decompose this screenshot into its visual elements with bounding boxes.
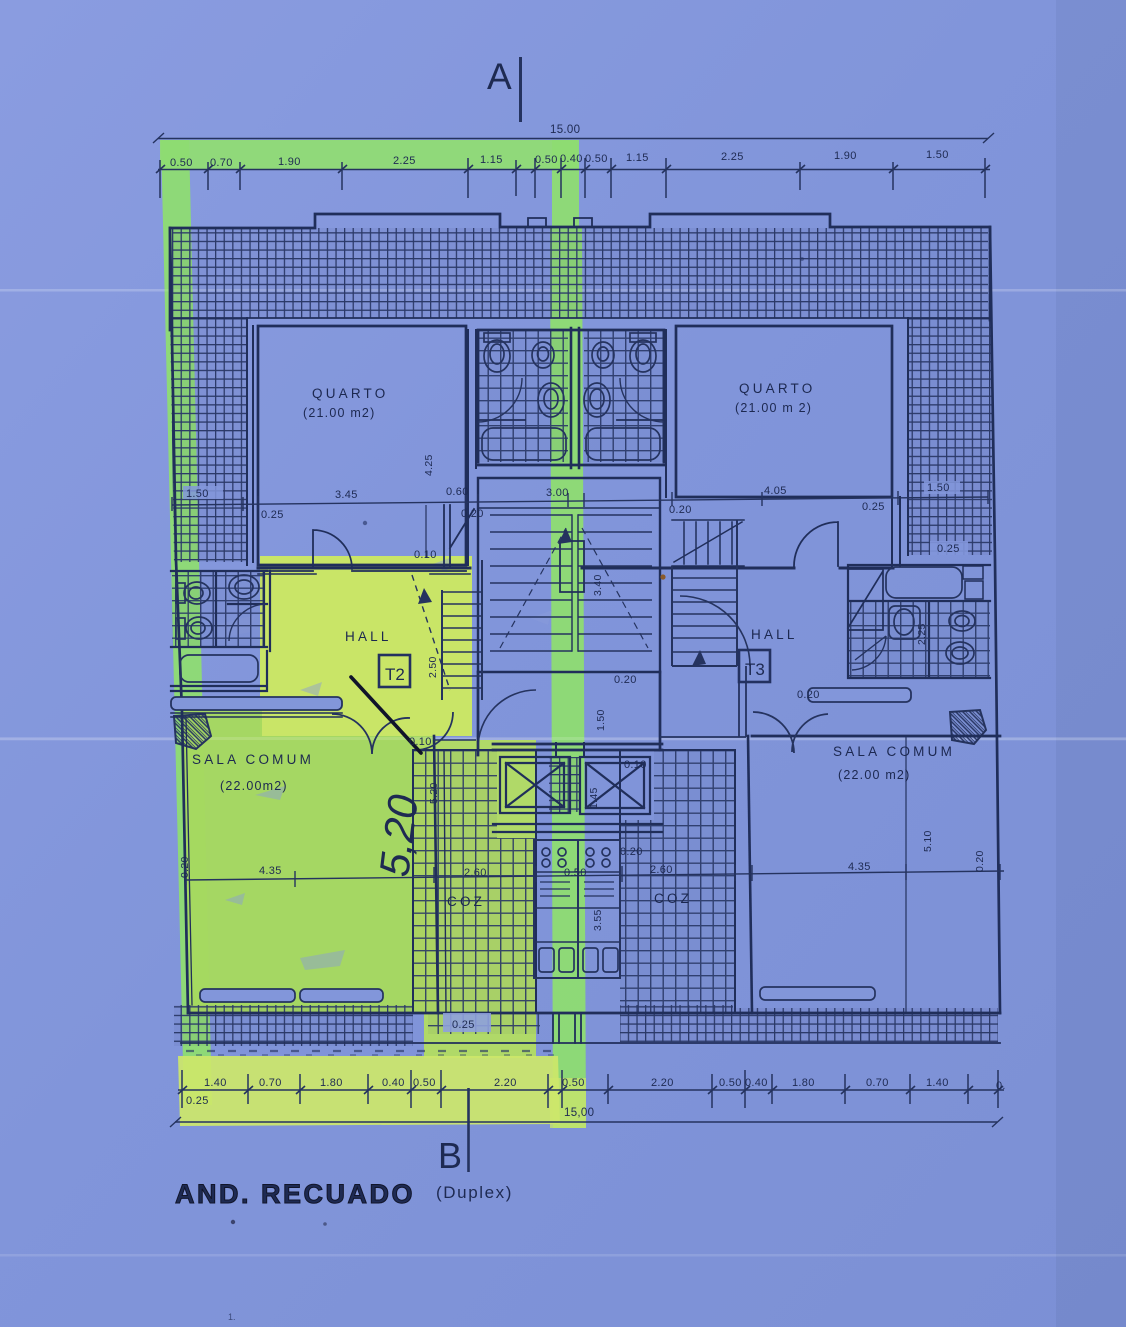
svg-text:5,20: 5,20: [370, 792, 427, 879]
svg-text:1.90: 1.90: [278, 156, 301, 168]
svg-text:5.20: 5.20: [428, 782, 440, 804]
svg-text:(21.00 m2): (21.00 m2): [303, 406, 375, 420]
svg-text:1.50: 1.50: [926, 149, 949, 161]
svg-text:1.40: 1.40: [204, 1077, 227, 1089]
svg-text:0.50: 0.50: [564, 867, 587, 879]
svg-text:3.45: 3.45: [335, 489, 358, 501]
svg-text:0.25: 0.25: [452, 1019, 475, 1031]
svg-text:1.50: 1.50: [927, 482, 950, 494]
svg-text:0.20: 0.20: [797, 689, 820, 701]
svg-text:1.50: 1.50: [595, 709, 607, 731]
svg-text:0.70: 0.70: [866, 1077, 889, 1089]
svg-text:1.15: 1.15: [480, 154, 503, 166]
svg-text:0.50: 0.50: [562, 1077, 585, 1089]
svg-text:A: A: [487, 56, 512, 97]
svg-text:0.25: 0.25: [937, 543, 960, 555]
svg-text:0.20: 0.20: [179, 856, 191, 878]
svg-text:HALL: HALL: [751, 627, 798, 642]
svg-text:0.40: 0.40: [745, 1077, 768, 1089]
svg-text:0.25: 0.25: [862, 501, 885, 513]
svg-text:2.60: 2.60: [650, 864, 673, 876]
svg-text:1.45: 1.45: [588, 787, 600, 809]
svg-text:1.80: 1.80: [792, 1077, 815, 1089]
svg-text:(21.00 m 2): (21.00 m 2): [735, 401, 812, 415]
svg-text:2.25: 2.25: [721, 151, 744, 163]
svg-text:0.25: 0.25: [186, 1095, 209, 1107]
svg-text:4.35: 4.35: [848, 861, 871, 873]
svg-text:1.40: 1.40: [926, 1077, 949, 1089]
svg-text:COZ: COZ: [447, 894, 485, 909]
svg-text:1.50: 1.50: [186, 488, 209, 500]
svg-text:1.15: 1.15: [626, 152, 649, 164]
svg-text:2.20: 2.20: [651, 1077, 674, 1089]
svg-text:SALA COMUM: SALA COMUM: [192, 752, 314, 767]
svg-text:2.20: 2.20: [494, 1077, 517, 1089]
svg-text:0.20: 0.20: [620, 846, 643, 858]
svg-text:(22.00m2): (22.00m2): [220, 779, 288, 793]
svg-text:0.10: 0.10: [624, 759, 647, 771]
svg-text:2.50: 2.50: [427, 656, 439, 678]
svg-text:0.20: 0.20: [974, 850, 986, 872]
svg-text:T3: T3: [745, 660, 765, 679]
svg-text:3.40: 3.40: [592, 574, 604, 596]
svg-text:3.55: 3.55: [592, 909, 604, 931]
svg-text:0.60: 0.60: [446, 486, 469, 498]
svg-text:2.60: 2.60: [464, 867, 487, 879]
svg-text:SALA COMUM: SALA COMUM: [833, 744, 955, 759]
svg-text:2.25: 2.25: [393, 155, 416, 167]
svg-text:4.25: 4.25: [423, 454, 435, 476]
svg-text:0.50: 0.50: [719, 1077, 742, 1089]
svg-text:(Duplex): (Duplex): [436, 1183, 513, 1202]
svg-text:0.50: 0.50: [585, 153, 608, 165]
svg-text:0.20: 0.20: [614, 674, 637, 686]
svg-text:1.80: 1.80: [320, 1077, 343, 1089]
svg-text:COZ: COZ: [654, 891, 692, 906]
svg-text:4.35: 4.35: [259, 865, 282, 877]
svg-text:0.25: 0.25: [261, 509, 284, 521]
svg-text:3.00: 3.00: [546, 487, 569, 499]
svg-text:0.20: 0.20: [461, 508, 484, 520]
svg-text:0.70: 0.70: [259, 1077, 282, 1089]
svg-text:1.90: 1.90: [834, 150, 857, 162]
svg-text:AND. RECUADO: AND. RECUADO: [175, 1179, 415, 1209]
svg-text:0.70: 0.70: [210, 157, 233, 169]
svg-text:0.50: 0.50: [170, 157, 193, 169]
svg-text:2.25: 2.25: [916, 623, 928, 645]
svg-text:5.10: 5.10: [922, 830, 934, 852]
svg-text:0.50: 0.50: [535, 154, 558, 166]
svg-text:QUARTO: QUARTO: [312, 386, 388, 401]
svg-text:0.40: 0.40: [560, 153, 583, 165]
svg-text:15,00: 15,00: [564, 1107, 594, 1119]
svg-text:0.40: 0.40: [382, 1077, 405, 1089]
svg-text:0.10: 0.10: [409, 736, 432, 748]
svg-text:B: B: [438, 1135, 462, 1176]
svg-text:0.: 0.: [996, 1080, 1006, 1092]
svg-text:1.: 1.: [228, 1312, 236, 1322]
svg-text:T2: T2: [385, 665, 405, 684]
svg-text:4.05: 4.05: [764, 485, 787, 497]
svg-text:0.20: 0.20: [669, 504, 692, 516]
svg-text:0.10: 0.10: [414, 549, 437, 561]
svg-text:(22.00 m2): (22.00 m2): [838, 768, 910, 782]
svg-text:HALL: HALL: [345, 629, 392, 644]
svg-text:0.50: 0.50: [413, 1077, 436, 1089]
svg-text:QUARTO: QUARTO: [739, 381, 815, 396]
svg-text:15.00: 15.00: [550, 124, 580, 136]
